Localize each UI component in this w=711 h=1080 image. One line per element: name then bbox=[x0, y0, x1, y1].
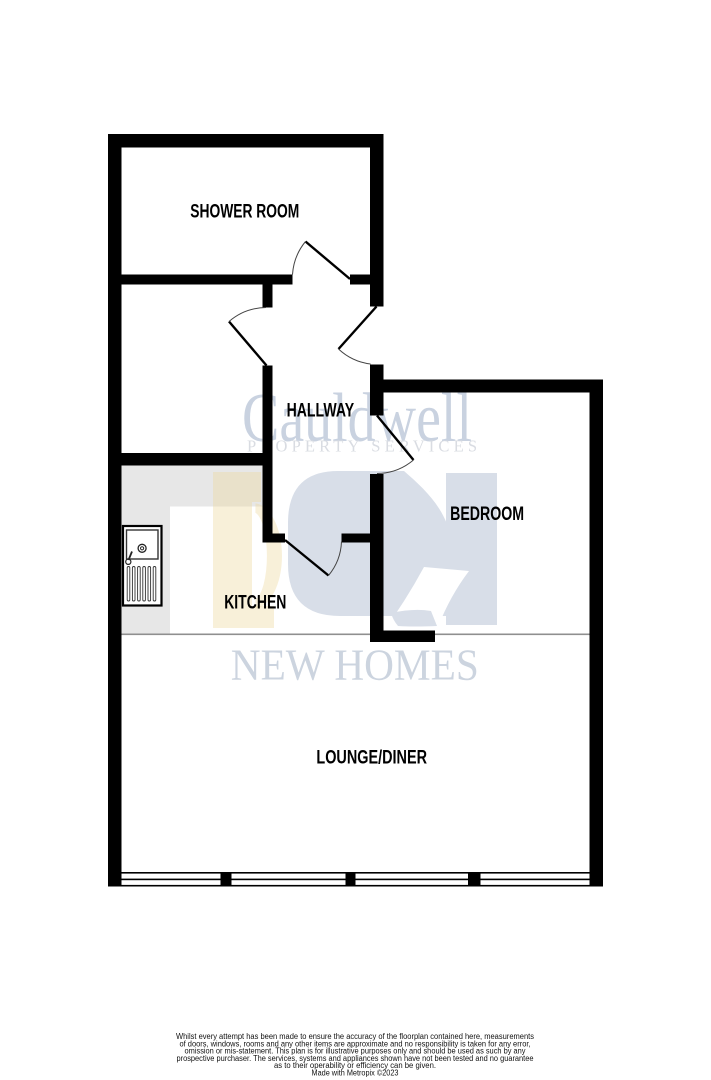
svg-text:LOUNGE/DINER: LOUNGE/DINER bbox=[316, 748, 427, 769]
svg-text:HALLWAY: HALLWAY bbox=[287, 400, 355, 421]
svg-text:Made with Metropix ©2023: Made with Metropix ©2023 bbox=[312, 1069, 399, 1078]
svg-text:KITCHEN: KITCHEN bbox=[224, 593, 286, 614]
svg-text:BEDROOM: BEDROOM bbox=[450, 504, 524, 525]
svg-text:SHOWER ROOM: SHOWER ROOM bbox=[190, 201, 299, 222]
svg-text:NEW HOMES: NEW HOMES bbox=[231, 641, 479, 690]
